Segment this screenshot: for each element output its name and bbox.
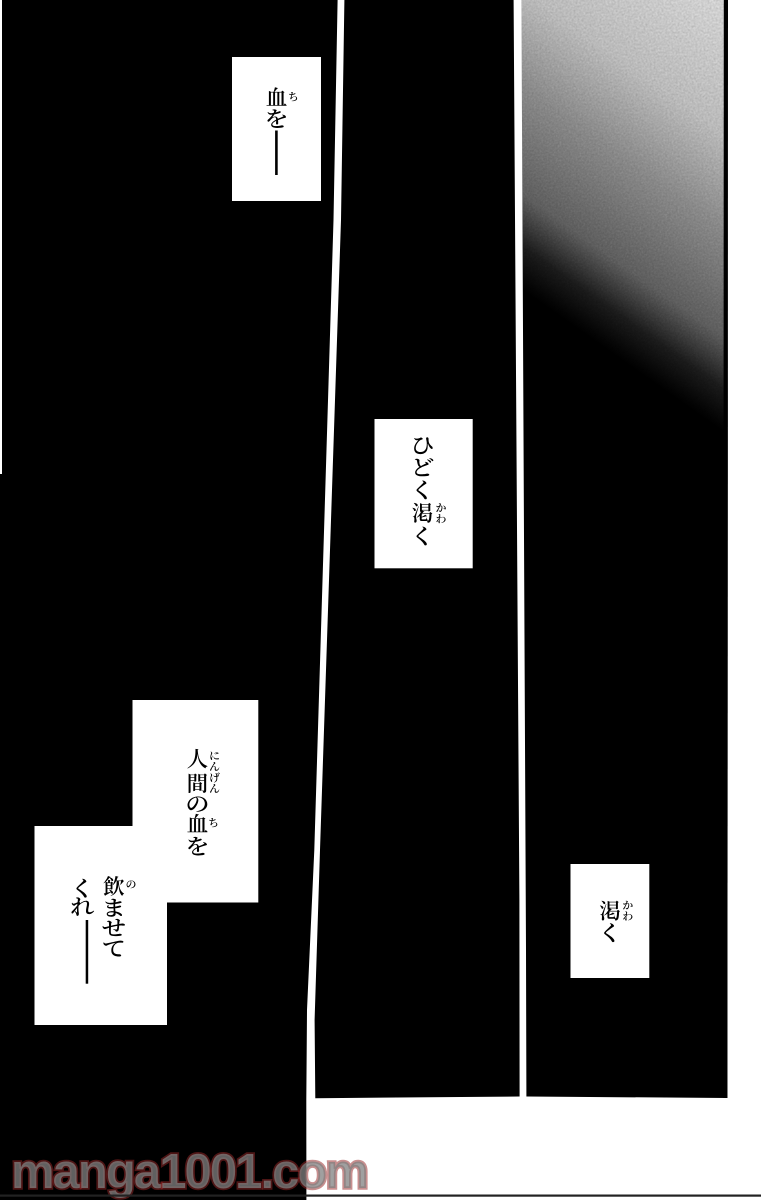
svg-text:manga1001.com: manga1001.com <box>11 1145 369 1199</box>
